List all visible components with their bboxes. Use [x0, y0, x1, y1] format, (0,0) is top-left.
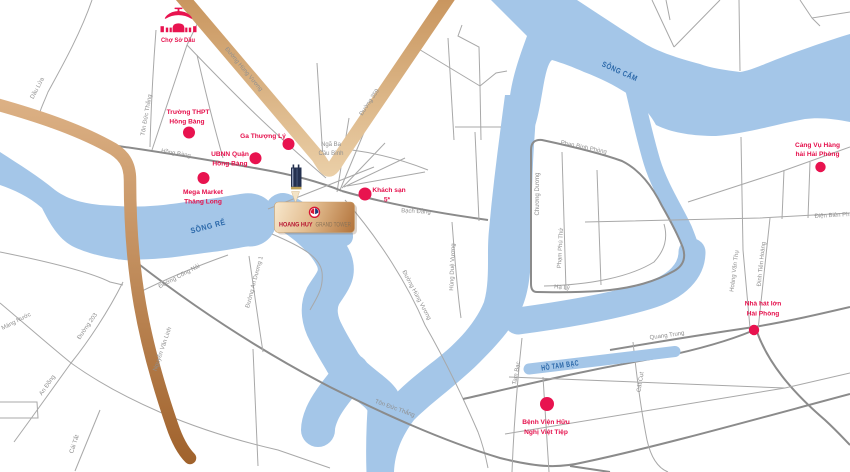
svg-text:Hồng Bàng: Hồng Bàng	[169, 117, 204, 126]
svg-text:Chương Dương: Chương Dương	[535, 173, 541, 216]
svg-text:Thăng Long: Thăng Long	[184, 199, 222, 206]
svg-text:UBNN Quận: UBNN Quận	[211, 151, 249, 158]
svg-text:Khách sạn: Khách sạn	[372, 187, 405, 194]
svg-text:Nhà hát lớn: Nhà hát lớn	[745, 301, 782, 308]
svg-text:Ngã Ba: Ngã Ba	[321, 142, 342, 148]
svg-text:Hải Phòng: Hải Phòng	[747, 311, 780, 318]
svg-text:Chợ Sở Dầu: Chợ Sở Dầu	[161, 35, 195, 44]
svg-text:Mega Market: Mega Market	[183, 189, 224, 196]
svg-text:hải Hải Phòng: hải Hải Phòng	[796, 151, 840, 158]
svg-text:Cảng Vụ Hàng: Cảng Vụ Hàng	[795, 142, 840, 149]
svg-text:Trường THPT: Trường THPT	[167, 109, 210, 116]
svg-text:Nghị Việt Tiệp: Nghị Việt Tiệp	[524, 429, 568, 436]
svg-text:HOANG HUY: HOANG HUY	[279, 222, 313, 229]
svg-text:GRAND TOWER: GRAND TOWER	[316, 222, 352, 229]
svg-text:Cầu Bình: Cầu Bình	[318, 151, 343, 157]
svg-text:Hồng Bàng: Hồng Bàng	[212, 159, 247, 168]
svg-text:Bệnh Viện Hữu: Bệnh Viện Hữu	[522, 419, 570, 426]
svg-text:5*: 5*	[384, 197, 391, 204]
svg-text:Ga Thượng Lý: Ga Thượng Lý	[240, 133, 286, 140]
